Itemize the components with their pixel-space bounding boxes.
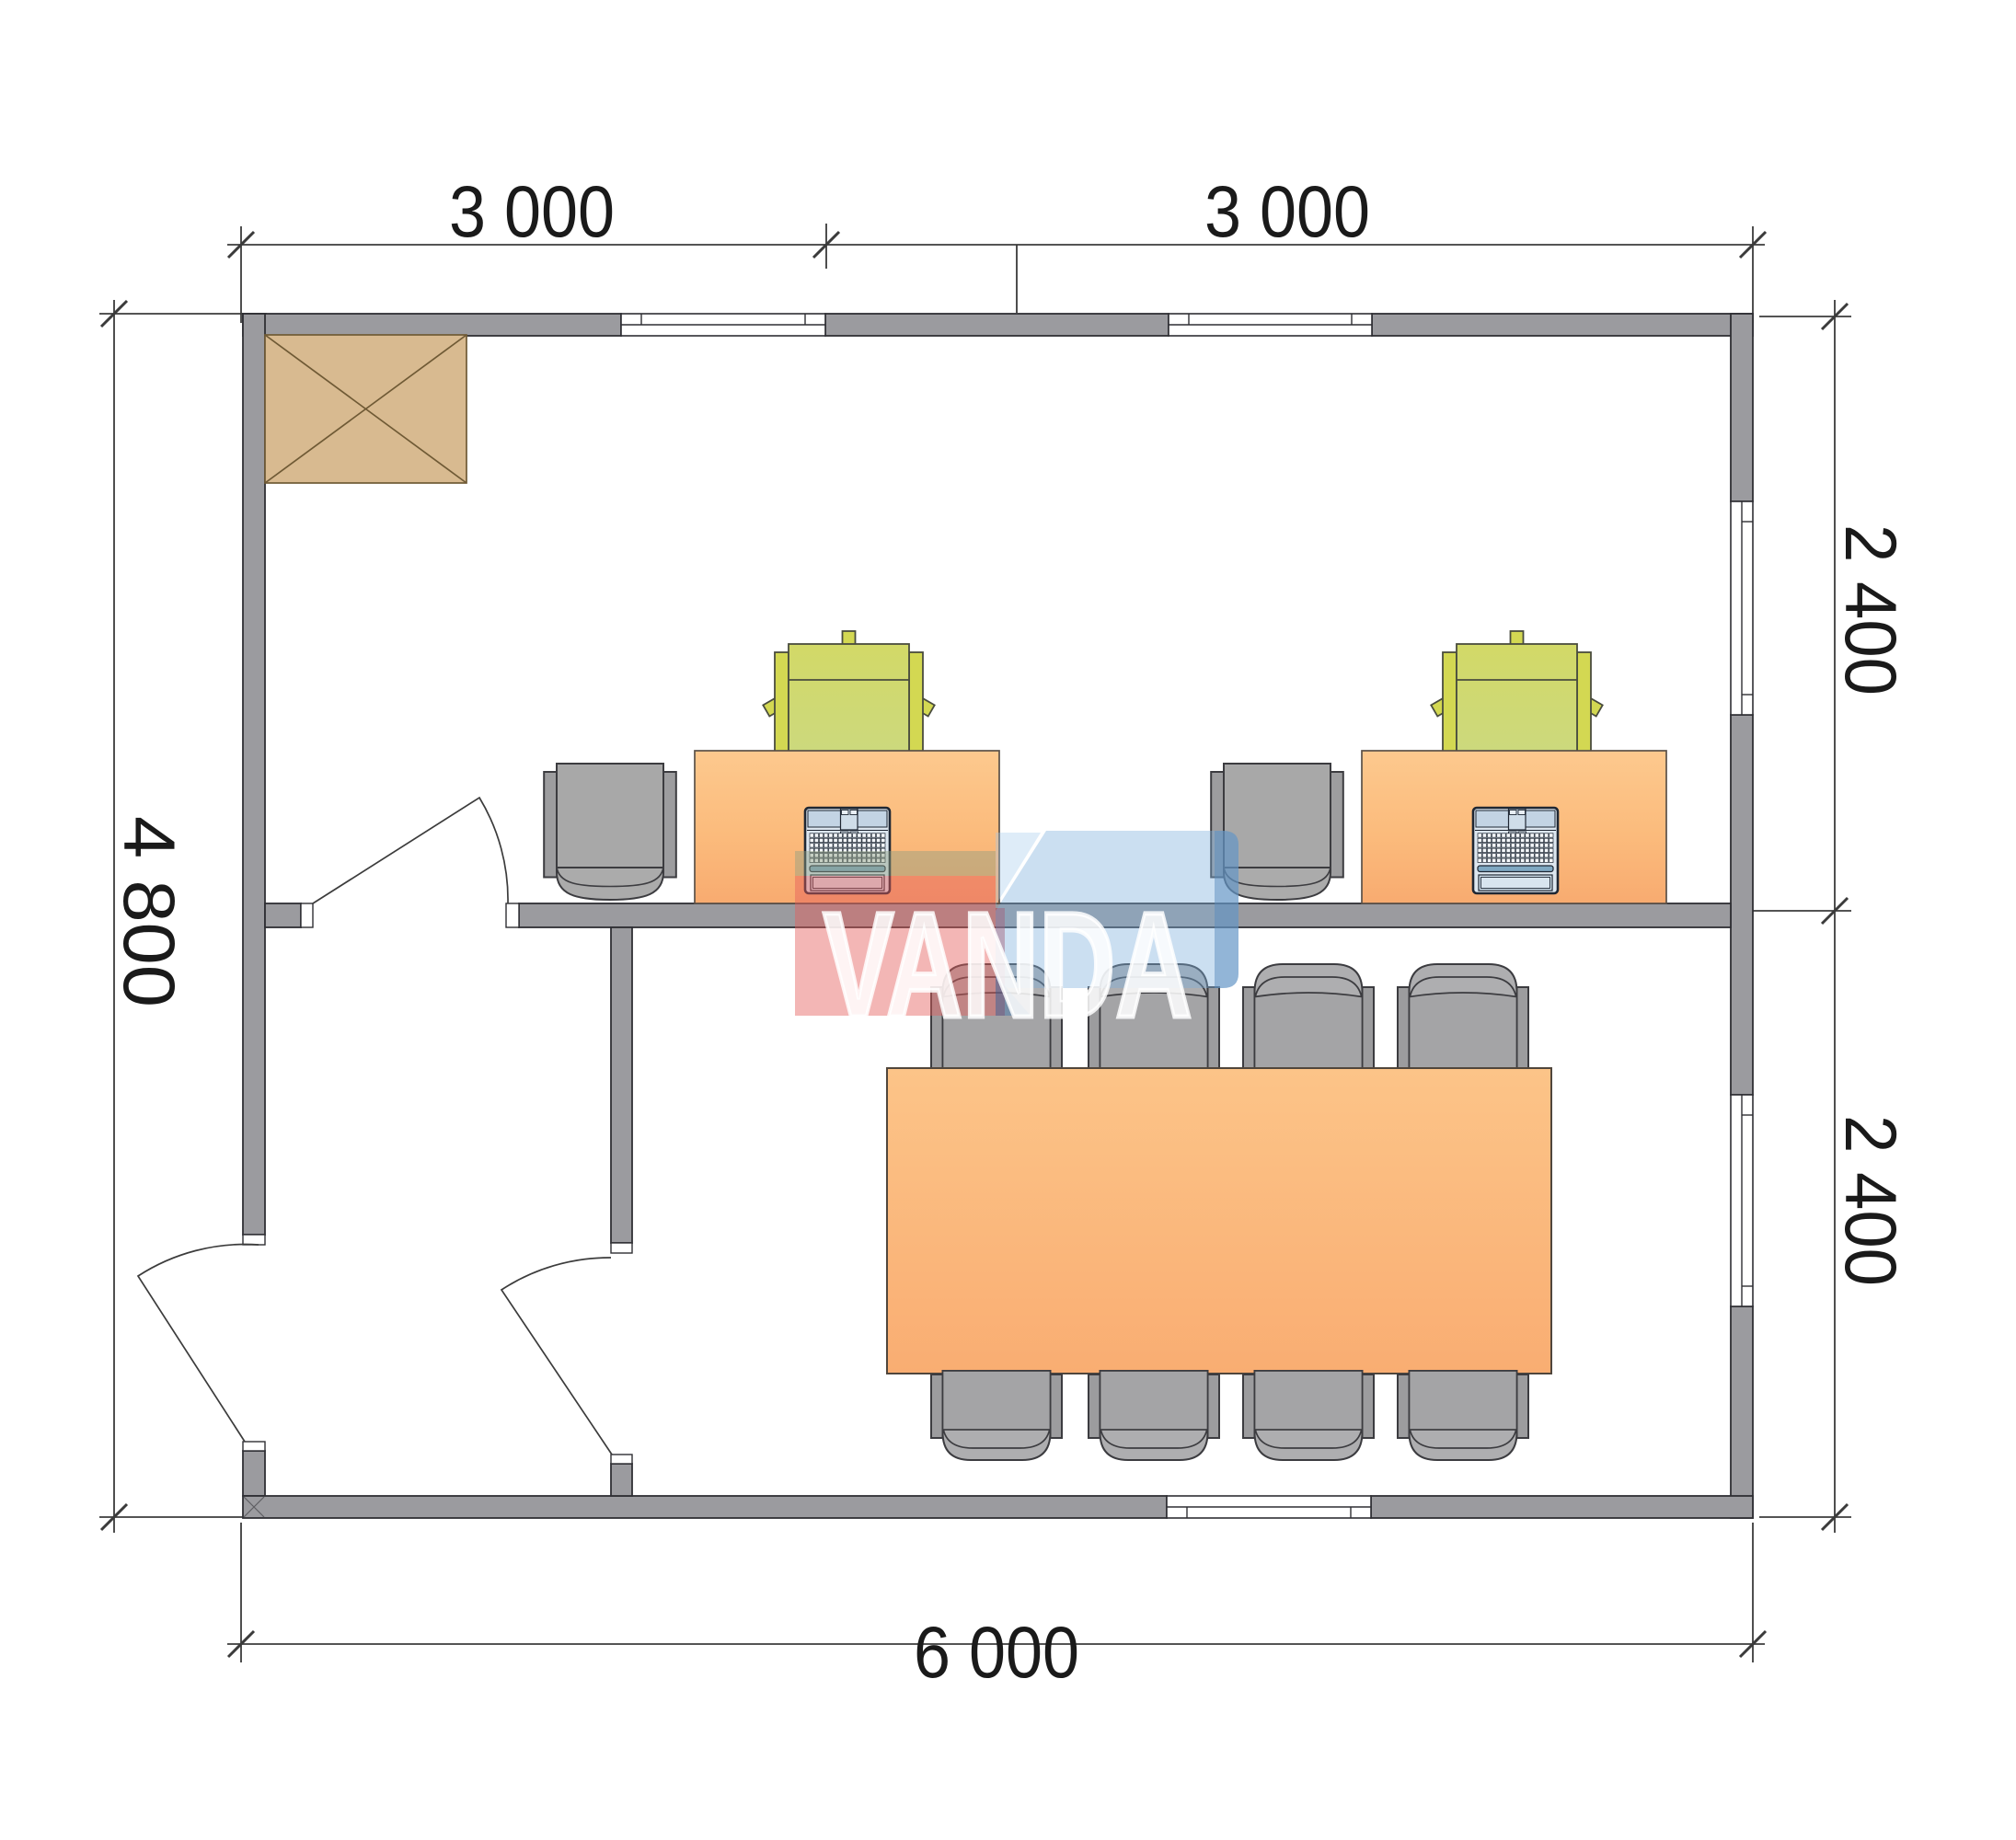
svg-text:2 400: 2 400 (1830, 524, 1912, 696)
svg-text:VANDA: VANDA (824, 880, 1192, 1048)
svg-text:3 000: 3 000 (1204, 170, 1370, 252)
svg-text:2 400: 2 400 (1830, 1115, 1912, 1286)
svg-text:3 000: 3 000 (449, 170, 615, 252)
svg-text:6 000: 6 000 (914, 1611, 1079, 1693)
svg-text:4 800: 4 800 (109, 816, 190, 1007)
